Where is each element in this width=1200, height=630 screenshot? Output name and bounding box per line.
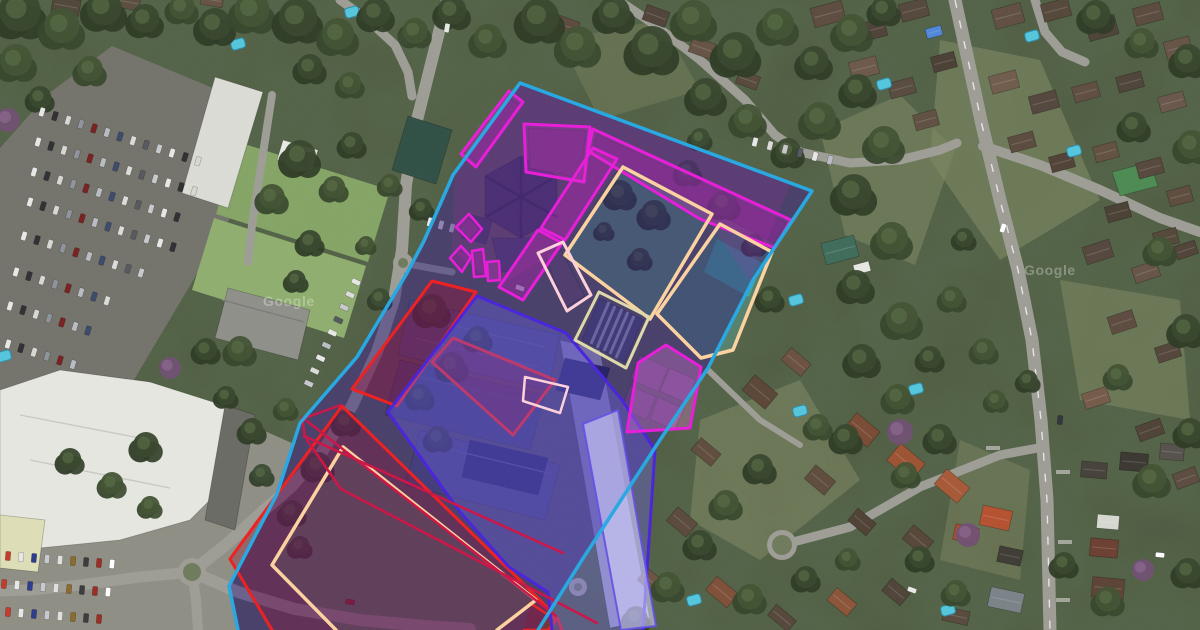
satellite-map: Google Google <box>0 0 1200 630</box>
map-canvas <box>0 0 1200 630</box>
